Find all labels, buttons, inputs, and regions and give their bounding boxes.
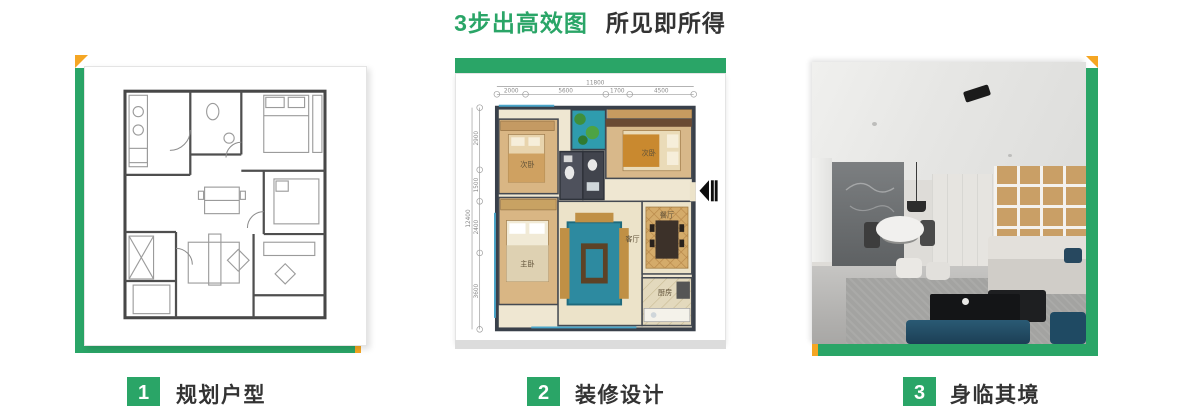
colored-floorplan-drawing: 11800 2000 5600 1700 4500 12400 2900 150…	[462, 79, 720, 337]
cad-floorplan-drawing	[108, 81, 343, 331]
svg-text:次卧: 次卧	[520, 159, 534, 168]
green-frame-right	[1086, 68, 1098, 356]
svg-text:2000: 2000	[503, 88, 518, 94]
interior-render-image	[812, 62, 1086, 344]
step-3-number: 3	[914, 382, 925, 405]
svg-text:12400: 12400	[466, 209, 472, 228]
white-stool	[926, 262, 950, 280]
outer-walls	[125, 91, 325, 318]
page-title: 3步出高效图所见即所得	[0, 4, 1180, 38]
entry-arrow-icon	[699, 180, 717, 201]
panel-step1	[75, 55, 368, 353]
door-arcs	[170, 130, 264, 265]
pendant-lamp-shade	[907, 201, 926, 212]
sofa	[988, 236, 1086, 294]
green-frame-bottom	[818, 344, 1098, 356]
step-2-badge: 2	[527, 377, 560, 406]
colored-floorplan-card: 11800 2000 5600 1700 4500 12400 2900 150…	[455, 73, 726, 342]
svg-text:2400: 2400	[473, 219, 479, 234]
pendant-lamp-icon	[916, 162, 917, 202]
svg-text:厨房: 厨房	[657, 287, 671, 296]
blue-velvet-bench	[906, 320, 1030, 344]
downlight	[872, 122, 877, 126]
step-3-label: 身临其境	[950, 379, 1040, 406]
panel-step2: 11800 2000 5600 1700 4500 12400 2900 150…	[455, 58, 726, 349]
svg-text:11800: 11800	[586, 80, 605, 86]
promo-banner: 3步出高效图所见即所得	[0, 0, 1180, 406]
green-frame-top	[455, 58, 726, 73]
dining-table	[876, 216, 924, 242]
green-frame-left	[75, 68, 84, 353]
step-1-label: 规划户型	[176, 379, 266, 406]
svg-text:2900: 2900	[473, 130, 479, 145]
svg-text:餐厅: 餐厅	[659, 210, 673, 219]
svg-text:3600: 3600	[473, 283, 479, 298]
svg-text:1700: 1700	[609, 88, 624, 94]
inner-walls	[125, 91, 325, 318]
step-2-label: 装修设计	[575, 379, 665, 406]
svg-text:次卧: 次卧	[641, 148, 655, 157]
orange-frame-tip	[812, 344, 818, 356]
white-stool	[896, 258, 922, 278]
svg-text:1500: 1500	[473, 177, 479, 192]
window-light	[812, 158, 832, 262]
title-highlight: 3步出高效图	[454, 10, 588, 36]
navy-pillow	[1064, 248, 1082, 263]
orange-corner-accent	[1086, 56, 1098, 68]
dimension-labels-top: 11800 2000 5600 1700 4500	[503, 80, 668, 94]
blue-ottoman	[1050, 312, 1086, 344]
svg-text:5600: 5600	[558, 88, 573, 94]
downlight	[1008, 154, 1012, 157]
title-rest: 所见即所得	[606, 10, 726, 36]
step-1-badge: 1	[127, 377, 160, 406]
svg-text:主卧: 主卧	[520, 259, 534, 268]
step-3-badge: 3	[903, 377, 936, 406]
panel-wall	[932, 174, 994, 266]
step-1-number: 1	[138, 382, 149, 405]
dimension-labels-left: 12400 2900 1500 2400 3600	[466, 130, 480, 298]
step-2-number: 2	[538, 382, 549, 405]
vase	[962, 298, 969, 305]
svg-text:4500: 4500	[653, 88, 668, 94]
cad-floorplan-card	[84, 66, 367, 346]
svg-text:客厅: 客厅	[625, 234, 639, 243]
panel-step3	[812, 56, 1098, 356]
card-bottom-shadow	[455, 340, 726, 349]
